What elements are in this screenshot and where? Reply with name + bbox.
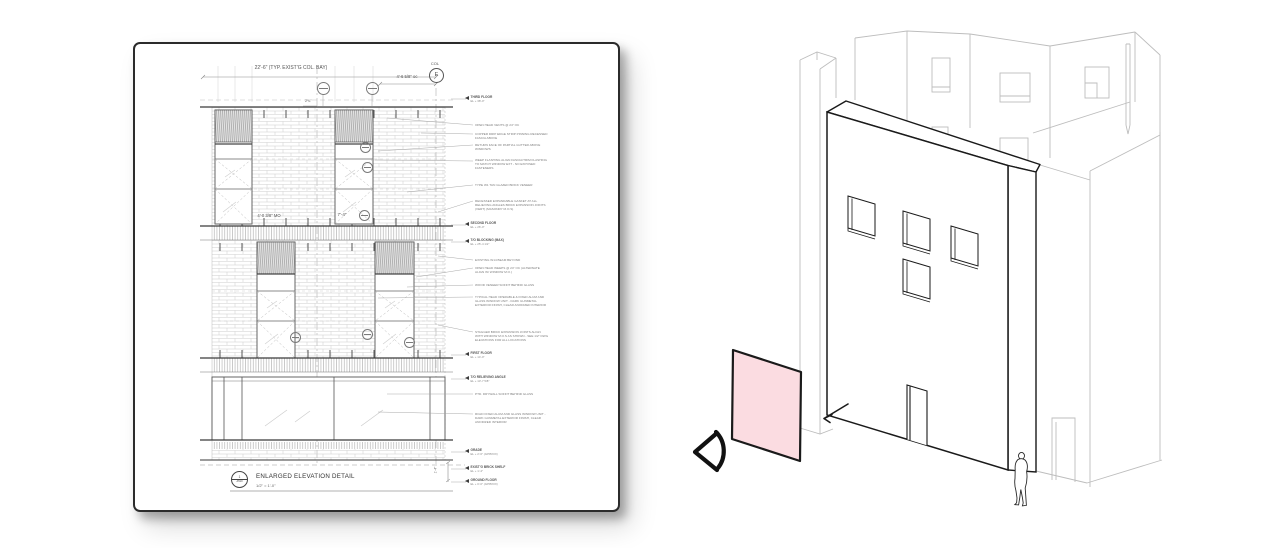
- keynote: TYPICAL HEAD OPERABLE & FIXED ALUM AND G…: [475, 295, 549, 307]
- keynote: RECESSED EXPANDABLE GASKET AT ALL RELIEV…: [475, 199, 549, 211]
- keynote: TYPE W1 TAN GLAZED BRICK VENEER: [475, 183, 549, 187]
- detail-callout-bubble: [366, 82, 379, 95]
- column-grid-bubble: E: [429, 68, 444, 83]
- window-lower-left: [257, 242, 295, 358]
- elevation-marker: T/O RELIEVING ANGLEEL + 13'-7 5/8": [465, 375, 506, 383]
- axonometric-view: [670, 30, 1190, 520]
- screenshot-canvas: 22'-6" (TYP. EXIST'G COL. BAY) 4'-6 5/8"…: [0, 0, 1280, 548]
- elevation-drawing: [135, 44, 617, 509]
- foreground-wall: [827, 101, 1040, 472]
- elevation-flag-icon: [465, 449, 469, 453]
- highlighted-panel: [732, 350, 801, 461]
- elevation-marker: FIRST FLOOREL + 14'-0": [465, 351, 492, 359]
- dim-bay: 22'-6" (TYP. EXIST'G COL. BAY): [221, 65, 361, 71]
- dim-masonry-opening: 4'-0 3/8" MO: [241, 213, 297, 218]
- keynote: PTD. DRYWALL SOFFIT BEHIND GLASS: [475, 392, 549, 396]
- detail-callout-bubble: [359, 210, 370, 221]
- dim-base-height: 1'-4": [433, 467, 437, 474]
- elevation-flag-icon: [465, 479, 469, 483]
- view-direction-eye-icon: [695, 432, 724, 470]
- detail-callout-bubble: [360, 142, 371, 153]
- detail-callout-bubble: [404, 337, 415, 348]
- keynote: RETURN FACE OF PARTIAL GUTTER ABOVE WIND…: [475, 143, 549, 151]
- elevation-marker: THIRD FLOOREL + 38'-0": [465, 95, 492, 103]
- detail-title-bubble: 1 A510: [231, 471, 248, 488]
- keynote: WEEP FLASHING ALIGN FASCIA/TRIM FLASHING…: [475, 158, 549, 170]
- detail-title: ENLARGED ELEVATION DETAIL: [256, 473, 355, 480]
- storefront-glazing: [212, 377, 445, 440]
- detail-callout-bubble: [362, 162, 373, 173]
- elevation-flag-icon: [465, 376, 469, 380]
- keynote: OPEN HEAD WEEPS @ 24" OC (ALTERNATE ALIG…: [475, 266, 549, 274]
- detail-callout-bubble: [362, 329, 373, 340]
- elevation-marker: SECOND FLOOREL + 26'-0": [465, 221, 496, 229]
- base-dim-line: [446, 461, 450, 482]
- col-label: COL: [425, 61, 445, 66]
- elevation-flag-icon: [465, 222, 469, 226]
- elevation-detail-sheet: 22'-6" (TYP. EXIST'G COL. BAY) 4'-6 5/8"…: [133, 42, 620, 512]
- keynote: EXISTING W14 BEAM BEYOND: [475, 258, 549, 262]
- elevation-flag-icon: [465, 96, 469, 100]
- elevation-flag-icon: [465, 352, 469, 356]
- window-upper-left: [215, 110, 252, 224]
- detail-scale: 1/2" = 1'-0": [256, 483, 276, 488]
- keynote: WOOD VENEER SOFFIT BEHIND GLASS: [475, 283, 549, 287]
- elevation-flag-icon: [465, 239, 469, 243]
- keynote: OPEN HEAD VENTS @ 24" OC: [475, 123, 549, 127]
- elevation-marker: T/O BLOCKING (MAX)EL + 25'-4 1/2": [465, 238, 504, 246]
- keynote: COPPER DRIP EDGE STRIP PINNING RECESSED …: [475, 132, 549, 140]
- elevation-marker: EXIST'G BRICK SHELFEL + 1'-4": [465, 465, 505, 473]
- wall-door-opening: [907, 385, 927, 445]
- wall-end-face: [1008, 166, 1036, 473]
- dim-offset: 2¾": [305, 99, 312, 103]
- elevation-flag-icon: [465, 466, 469, 470]
- elevation-marker: GROUND FLOOREL + 0'-0" (APPROX): [465, 478, 498, 486]
- keynote: STAGGER BRICK EXPANSION JOINTS ALIGN WIT…: [475, 330, 549, 342]
- keynote: RIGID FIXED ALUM AND GLASS WINDOW UNIT -…: [475, 412, 549, 424]
- elevation-marker: GRADEEL + 2'-6" (APPROX): [465, 448, 498, 456]
- dim-window-width: 7'-4": [328, 212, 356, 217]
- detail-callout-bubble: [317, 82, 330, 95]
- detail-callout-bubble: [290, 332, 301, 343]
- dim-window-spacing: 4'-6 5/8" oc: [378, 74, 436, 79]
